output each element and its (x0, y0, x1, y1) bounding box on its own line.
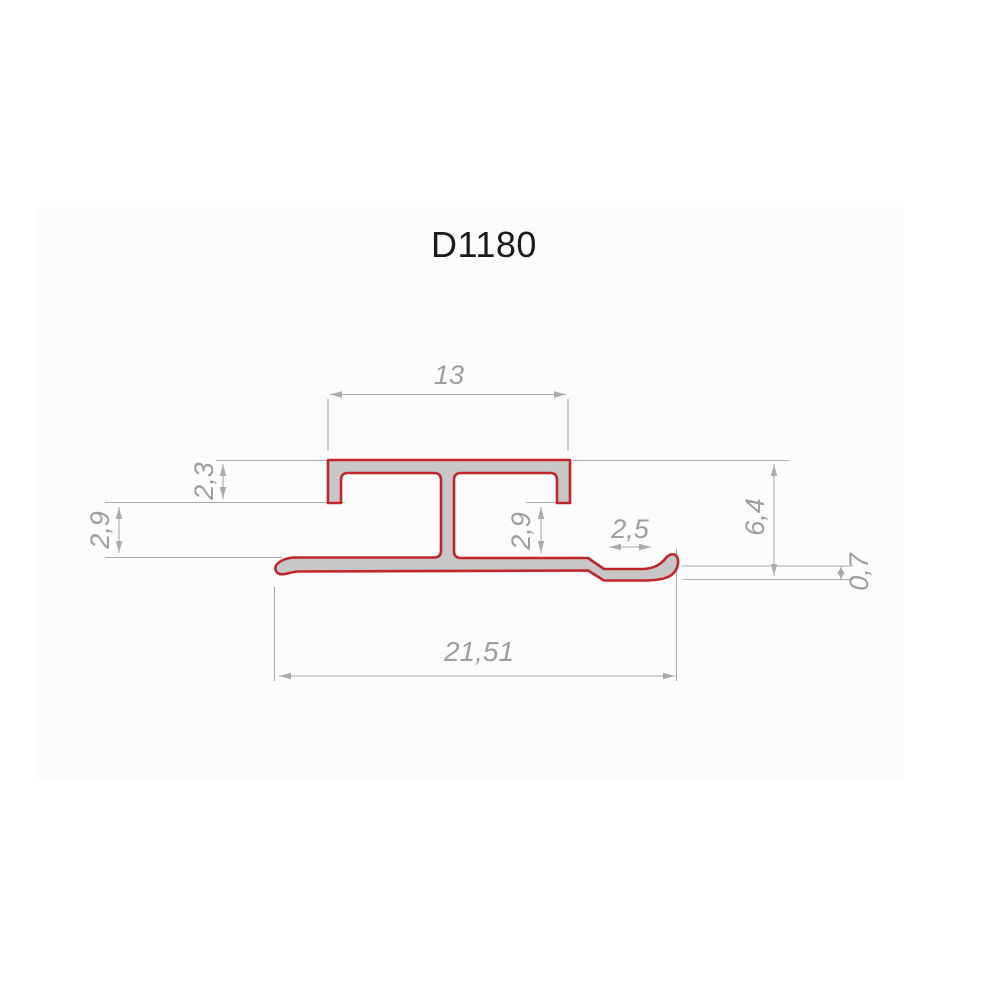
dimension-center-gap: 2,9 (506, 503, 560, 554)
dimension-step-width: 2,5 (609, 514, 651, 547)
profile-cross-section-drawing: 13 2,3 2,9 2,9 2,5 6 (0, 0, 1000, 1000)
dim-label-step-width: 2,5 (610, 514, 650, 544)
dim-label-center-gap: 2,9 (506, 512, 536, 551)
dim-label-left-gap: 2,9 (85, 511, 115, 550)
dimension-wall-thickness: 0,7 (681, 552, 874, 591)
dim-label-overall-width: 21,51 (443, 636, 514, 667)
dimension-left-gap: 2,9 (85, 507, 282, 558)
dim-label-top-width: 13 (434, 360, 464, 390)
technical-drawing-page: D1180 13 2,3 2,9 (0, 0, 1000, 1000)
dim-label-hook-depth: 2,3 (189, 462, 219, 501)
dim-label-wall-thickness: 0,7 (844, 552, 874, 591)
dimension-hook-depth: 2,3 (105, 461, 345, 503)
dimension-top-width: 13 (328, 360, 568, 451)
dimension-overall-height: 6,4 (573, 461, 789, 577)
dim-label-overall-height: 6,4 (740, 498, 770, 536)
